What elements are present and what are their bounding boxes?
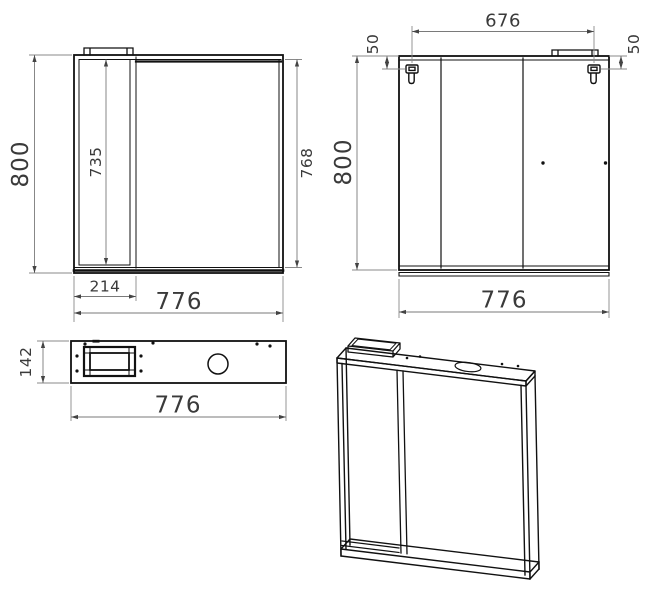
screw-hole <box>406 357 409 360</box>
edge-notch <box>93 340 100 343</box>
dim-label-overall-width: 776 <box>156 289 203 315</box>
screw-hole <box>419 355 422 358</box>
dim-label-hanger-offset-right: 50 <box>625 34 643 55</box>
dim-label-compartment-height: 735 <box>87 146 105 177</box>
screw-hole <box>83 342 86 345</box>
screw-hole <box>541 161 544 164</box>
screw-hole <box>139 369 142 372</box>
screw-hole <box>75 354 78 357</box>
dim-label-overall-height: 800 <box>331 139 357 186</box>
technical-drawing-canvas: 735 800 768 214 776 676 <box>0 0 649 600</box>
screw-hole <box>501 363 504 366</box>
dim-label-mirror-height: 768 <box>298 147 316 178</box>
drawing-background <box>0 0 649 600</box>
dim-label-overall-width: 776 <box>155 393 202 419</box>
screw-hole <box>255 342 258 345</box>
dim-label-overall-height: 800 <box>8 141 34 188</box>
dim-label-compartment-width: 214 <box>89 278 120 296</box>
dim-label-overall-width: 776 <box>481 288 528 314</box>
dim-label-depth: 142 <box>17 346 35 377</box>
screw-hole <box>268 344 271 347</box>
dim-label-hanger-spacing: 676 <box>485 11 521 32</box>
screw-hole <box>517 365 520 368</box>
dim-label-hanger-offset-left: 50 <box>364 34 382 55</box>
screw-hole <box>75 369 78 372</box>
screw-hole <box>139 354 142 357</box>
screw-hole <box>151 341 154 344</box>
screw-hole <box>604 161 607 164</box>
